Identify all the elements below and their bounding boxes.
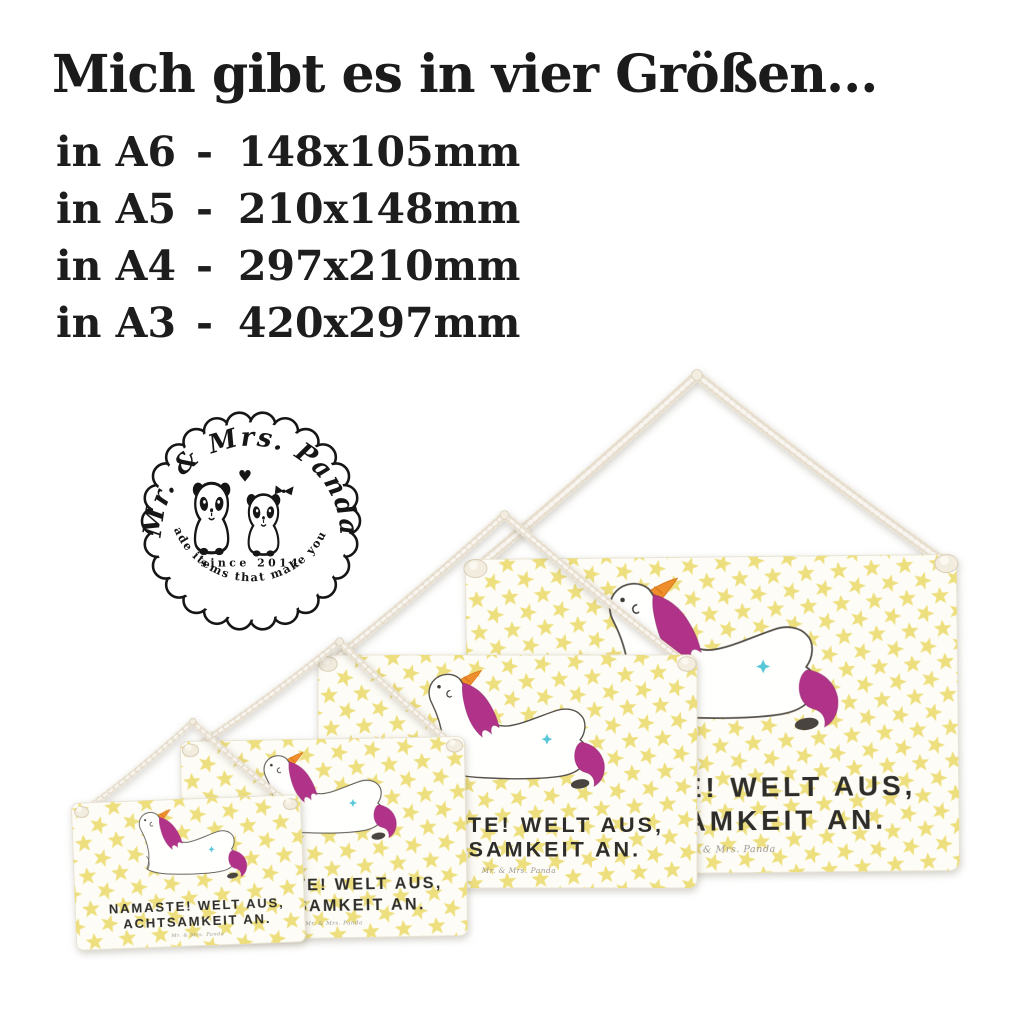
- size-label: in A3: [56, 295, 196, 352]
- rope-knot: [678, 657, 696, 671]
- size-separator: -: [196, 295, 238, 352]
- size-dims: 420x297mm: [238, 295, 520, 352]
- product-showcase: Mich gibt es in vier Größen... in A6 - 1…: [0, 0, 1024, 1024]
- size-separator: -: [196, 181, 238, 238]
- size-separator: -: [196, 124, 238, 181]
- rope-knot: [446, 739, 462, 752]
- rope-knot: [283, 798, 297, 810]
- size-label: in A4: [56, 238, 196, 295]
- size-row: in A5 - 210x148mm: [56, 181, 520, 238]
- size-row: in A3 - 420x297mm: [56, 295, 520, 352]
- deco-sign-a6: NAMASTE! WELT AUS,ACHTSAMKEIT AN.Mr. & M…: [56, 703, 318, 963]
- rope-knot: [74, 806, 88, 818]
- size-label: in A6: [56, 124, 196, 181]
- size-list: in A6 - 148x105mm in A5 - 210x148mm in A…: [56, 124, 520, 352]
- sign-graphic: NAMASTE! WELT AUS,ACHTSAMKEIT AN.Mr. & M…: [56, 703, 318, 963]
- rope-knot: [935, 554, 958, 572]
- mrs-panda-icon: [247, 494, 281, 556]
- size-row: in A6 - 148x105mm: [56, 124, 520, 181]
- size-row: in A4 - 297x210mm: [56, 238, 520, 295]
- mr-panda-icon: [193, 483, 230, 556]
- headline: Mich gibt es in vier Größen...: [52, 44, 877, 105]
- heart-icon: ♥: [238, 466, 252, 485]
- size-dims: 148x105mm: [238, 124, 520, 181]
- size-dims: 210x148mm: [238, 181, 520, 238]
- size-dims: 297x210mm: [238, 238, 520, 295]
- size-label: in A5: [56, 181, 196, 238]
- size-separator: -: [196, 238, 238, 295]
- sign-brand-signature: Mr. & Mrs. Panda: [481, 866, 556, 875]
